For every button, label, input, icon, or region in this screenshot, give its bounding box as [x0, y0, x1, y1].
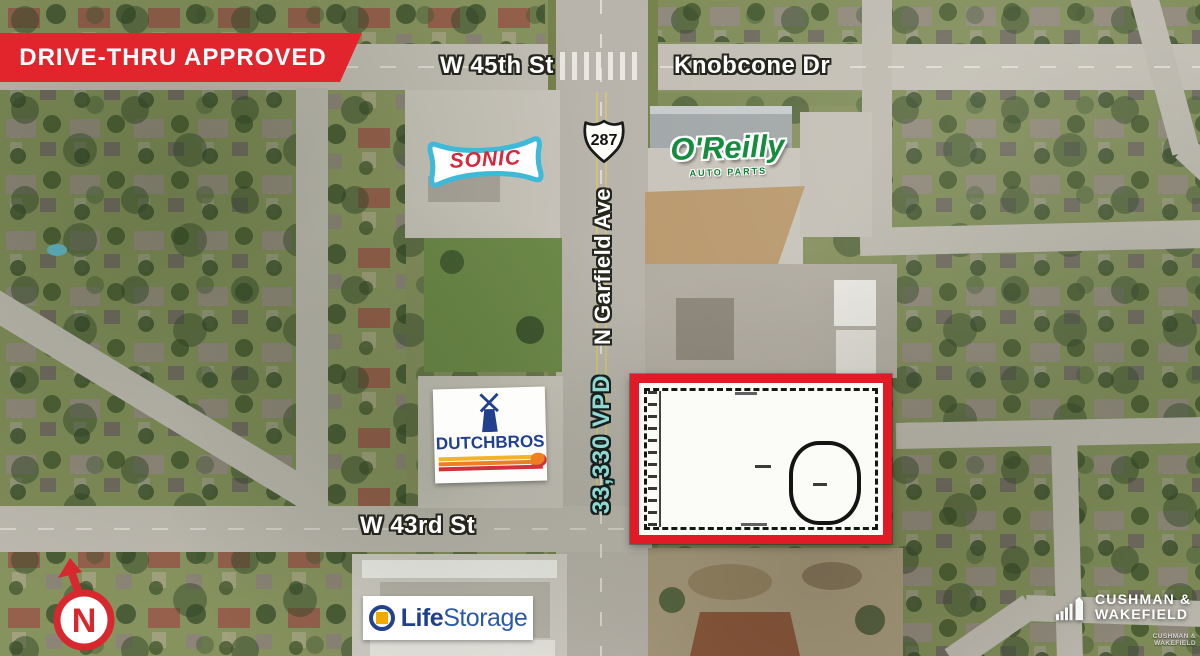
dutch-bros-word2: BROS — [495, 432, 545, 452]
north-label: N — [72, 602, 97, 640]
watermark-line1: CUSHMAN & — [1136, 633, 1196, 640]
cushman-wakefield-logo: CUSHMAN & WAKEFIELD — [1056, 592, 1191, 623]
parking-stall-line — [659, 391, 661, 527]
life-storage-square-icon — [376, 612, 388, 624]
plan-annotation-mark — [755, 465, 771, 468]
street-label-knobcone: Knobcone Dr — [674, 52, 830, 80]
cushman-wakefield-text: CUSHMAN & WAKEFIELD — [1095, 592, 1191, 622]
traffic-count-label: 33,330 VPD — [588, 364, 616, 514]
highway-287-number: 287 — [591, 131, 618, 149]
highway-287-shield-icon: 287 — [581, 117, 627, 165]
parking-stalls — [648, 391, 657, 527]
oreilly-logo-text: O'Reilly — [657, 128, 798, 169]
life-storage-word1: Life — [401, 604, 443, 632]
cushman-line2: WAKEFIELD — [1095, 607, 1191, 622]
dutch-bros-stripes — [439, 455, 542, 473]
cushman-wakefield-bars-icon — [1056, 592, 1086, 623]
cushman-wakefield-watermark: CUSHMAN & WAKEFIELD — [1136, 633, 1196, 647]
sonic-logo: SONIC — [427, 129, 545, 195]
street-label-w45th: W 45th St — [440, 52, 554, 80]
life-storage-logo-text: LifeStorage — [401, 604, 528, 633]
drive-thru-approved-banner: DRIVE-THRU APPROVED — [0, 33, 362, 82]
plan-annotation-mark — [735, 392, 757, 395]
street-label-w43rd: W 43rd St — [360, 512, 475, 540]
dutch-bros-logo-text: DUTCHBROS — [436, 432, 545, 455]
life-storage-logo-card: LifeStorage — [363, 596, 533, 640]
dutch-bros-word1: DUTCH — [436, 433, 496, 454]
street-label-garfield: N Garfield Ave — [590, 183, 616, 345]
north-arrow-icon: N — [44, 558, 120, 654]
plan-annotation-mark — [741, 523, 767, 526]
dutch-bros-windmill-icon — [467, 391, 512, 432]
dutch-bros-logo-card: DUTCHBROS — [433, 387, 547, 484]
dutch-bros-accent-icon — [530, 453, 546, 467]
banner-label: DRIVE-THRU APPROVED — [19, 44, 326, 72]
life-storage-icon — [369, 605, 395, 631]
watermark-line2: WAKEFIELD — [1136, 640, 1196, 647]
aerial-site-map: DRIVE-THRU APPROVED W 45th St Knobcone D… — [0, 0, 1200, 656]
oreilly-logo: O'Reilly AUTO PARTS — [657, 128, 799, 199]
cushman-line1: CUSHMAN & — [1095, 592, 1191, 607]
life-storage-word2: Storage — [443, 604, 527, 632]
site-plan-outline — [630, 374, 892, 544]
plan-annotation-mark — [813, 483, 827, 486]
